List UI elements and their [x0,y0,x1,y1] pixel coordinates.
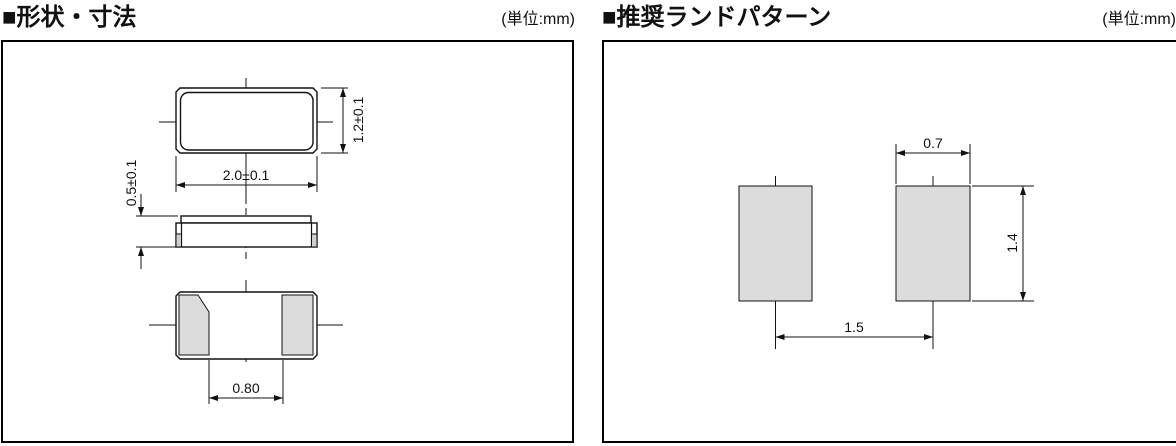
dim-body-thickness-lines [136,194,178,269]
arrow-down-icon [1020,292,1026,301]
side-pad-right [312,234,318,247]
land-pad-left [739,186,812,301]
dim-body-height: 1.2±0.1 [321,88,366,153]
dim-body-thickness-label: 0.5±0.1 [123,159,139,206]
dim-pad-height-label: 1.4 [1004,233,1020,253]
land-pad-right [896,186,970,301]
dim-pad-height-lines [972,186,1034,301]
arrow-up-icon [138,247,144,256]
land-pattern-title-text: 推奨ランドパターン [617,4,832,31]
arrow-left-icon [896,150,905,156]
datasheet-page: ■形状・寸法 (単位:mm) 1.2±0.1 2.0±0.1 [0,0,1176,446]
section-marker-icon: ■ [2,4,17,31]
arrow-right-icon [924,334,933,340]
land-pattern-panel-border [603,41,1176,442]
arrow-left-icon [176,182,185,188]
side-view: 0.5±0.1 [123,159,317,269]
dimensions-panel-title: ■形状・寸法 [2,2,137,34]
dimensions-unit-note: (単位:mm) [501,8,575,32]
section-marker-icon: ■ [602,4,617,31]
dimensions-drawing: 1.2±0.1 2.0±0.1 0.5±0.1 [1,40,574,443]
arrow-up-icon [340,88,346,97]
arrow-down-icon [138,207,144,216]
arrow-left-icon [209,395,218,401]
land-pattern: 0.7 1.4 1.5 [739,135,1034,349]
arrow-right-icon [274,395,283,401]
arrow-down-icon [340,144,346,153]
land-pattern-drawing: 0.7 1.4 1.5 [602,40,1176,443]
dim-electrode-gap: 0.80 [209,360,283,404]
arrow-right-icon [961,150,970,156]
dim-body-width-label: 2.0±0.1 [223,167,270,183]
land-pattern-panel-title: ■推奨ランドパターン [602,2,831,34]
dim-pad-width-label: 0.7 [923,135,943,151]
arrow-left-icon [776,334,785,340]
dim-pad-pitch-label: 1.5 [844,319,864,335]
dim-pad-pitch: 1.5 [776,319,934,340]
dimensions-header: ■形状・寸法 (単位:mm) [2,2,575,34]
dim-pad-height: 1.4 [972,186,1034,301]
package-lid-seam [181,93,314,151]
package-side-body [176,223,317,247]
dimensions-title-text: 形状・寸法 [17,4,137,31]
package-lid [181,216,311,223]
bottom-view: 0.80 [149,280,343,404]
dim-body-height-label: 1.2±0.1 [350,96,366,143]
dim-body-thickness: 0.5±0.1 [123,159,178,269]
land-pattern-unit-note: (単位:mm) [1102,8,1176,32]
dim-electrode-gap-label: 0.80 [232,380,259,396]
arrow-right-icon [308,182,317,188]
land-pattern-header: ■推奨ランドパターン (単位:mm) [602,2,1176,34]
side-pad-left [176,234,182,247]
dim-body-height-lines [321,88,348,153]
top-view: 1.2±0.1 2.0±0.1 [159,78,366,204]
bottom-pad-right [282,295,313,355]
arrow-up-icon [1020,186,1026,195]
